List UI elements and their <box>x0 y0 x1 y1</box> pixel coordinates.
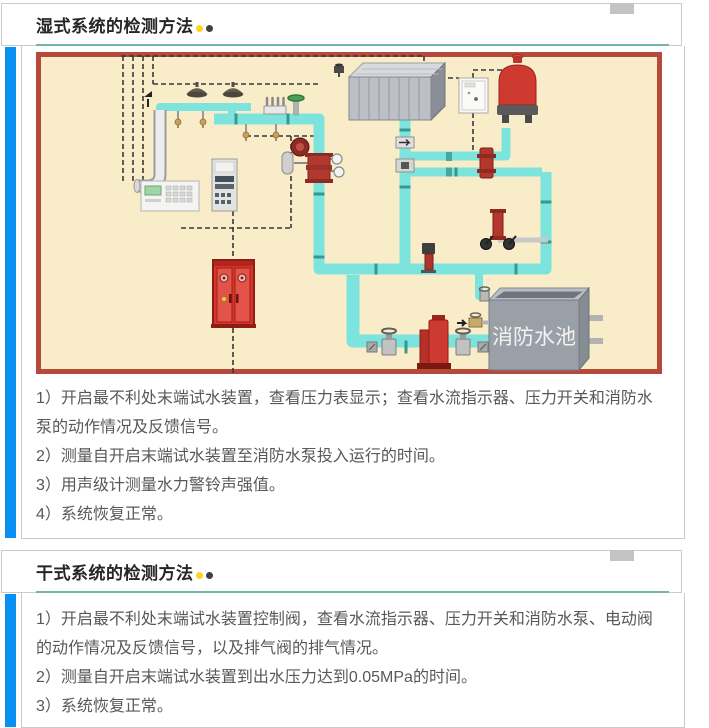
article-page: 湿式系统的检测方法 <box>0 0 709 728</box>
signal-butterfly-valve <box>477 148 496 178</box>
wet-section-header: 湿式系统的检测方法 <box>1 3 682 46</box>
pump-control-cabinet <box>211 260 256 328</box>
dry-section-header: 干式系统的检测方法 <box>1 550 682 593</box>
list-item: 1）开启最不利处末端试水装置控制阀，查看水流指示器、压力开关和消防水泵、电动阀的… <box>36 605 662 663</box>
equipment-cabinet <box>212 159 237 211</box>
flow-indicator <box>396 137 414 148</box>
electrical-box <box>459 78 488 113</box>
sprinkler-system-diagram: 消防水池 <box>36 52 662 374</box>
list-item: 1）开启最不利处末端试水装置，查看压力表显示；查看水流指示器、压力开关和消防水泵… <box>36 384 662 442</box>
list-item: 3）系统恢复正常。 <box>36 692 662 721</box>
wet-system-diagram-image: 消防水池 <box>36 52 662 374</box>
list-item: 2）测量自开启末端试水装置至消防水泵投入运行的时间。 <box>36 442 662 471</box>
wet-section-body: 消防水池 1）开启最不利处末端试水装置，查看压力表显示；查看水流指示器、压力开关… <box>0 46 709 539</box>
dry-system-steps: 1）开启最不利处末端试水装置控制阀，查看水流指示器、压力开关和消防水泵、电动阀的… <box>36 605 662 721</box>
dry-section-title: 干式系统的检测方法 <box>36 559 194 584</box>
dry-section-body: 1）开启最不利处末端试水装置控制阀，查看水流指示器、压力开关和消防水泵、电动阀的… <box>0 593 709 728</box>
wet-system-steps: 1）开启最不利处末端试水装置，查看压力表显示；查看水流指示器、压力开关和消防水泵… <box>36 384 662 529</box>
title-dot-yellow-icon <box>196 25 203 32</box>
list-item: 4）系统恢复正常。 <box>36 500 662 529</box>
title-underline <box>36 44 669 46</box>
accent-bar <box>5 594 16 727</box>
fire-water-pool: 消防水池 <box>489 288 589 370</box>
list-item: 2）测量自开启末端试水装置到出水压力达到0.05MPa的时间。 <box>36 663 662 692</box>
corner-tab-decoration <box>610 3 634 14</box>
title-dot-dark-icon <box>206 572 213 579</box>
list-item: 3）用声级计测量水力警铃声强值。 <box>36 471 662 500</box>
title-dot-dark-icon <box>206 25 213 32</box>
section-dry-system: 干式系统的检测方法 1）开启最不利处末端试水装置控制阀，查看水流指示器、压力开关… <box>0 550 709 728</box>
wet-section-content: 消防水池 1）开启最不利处末端试水装置，查看压力表显示；查看水流指示器、压力开关… <box>21 46 685 539</box>
dry-section-content: 1）开启最不利处末端试水装置控制阀，查看水流指示器、压力开关和消防水泵、电动阀的… <box>21 593 685 728</box>
accent-bar <box>5 47 16 538</box>
pool-label: 消防水池 <box>492 326 576 349</box>
corner-tab-decoration <box>610 550 634 561</box>
pressure-switch <box>396 159 414 172</box>
wet-section-title: 湿式系统的检测方法 <box>36 12 194 37</box>
title-underline <box>36 591 669 593</box>
title-dot-yellow-icon <box>196 572 203 579</box>
fire-alarm-control-panel <box>141 181 199 211</box>
section-wet-system: 湿式系统的检测方法 <box>0 3 709 539</box>
